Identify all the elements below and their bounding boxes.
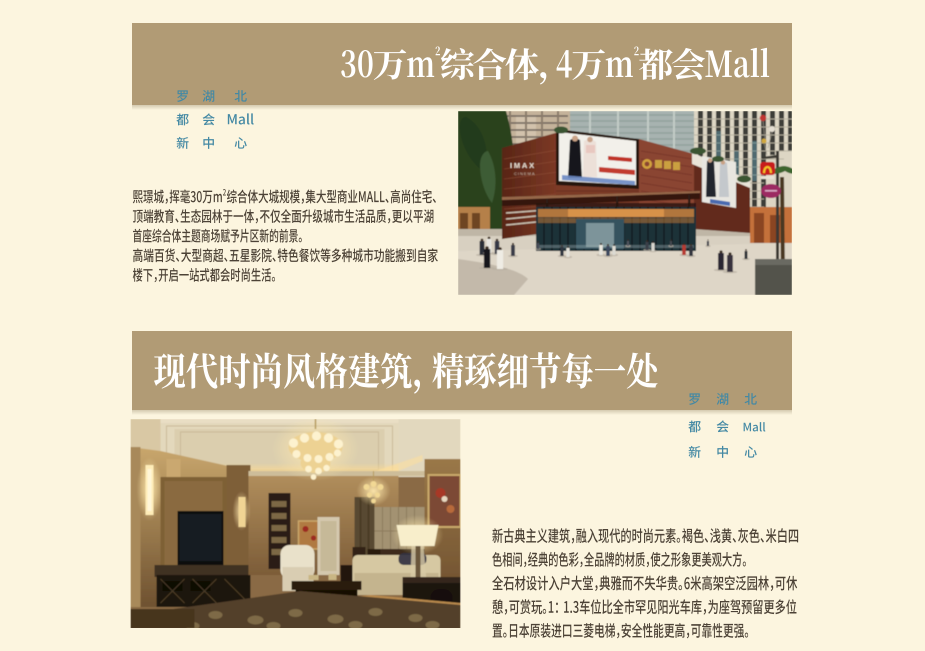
svg-text:IMAX: IMAX: [510, 161, 536, 170]
svg-text:CINEMA: CINEMA: [514, 171, 536, 176]
